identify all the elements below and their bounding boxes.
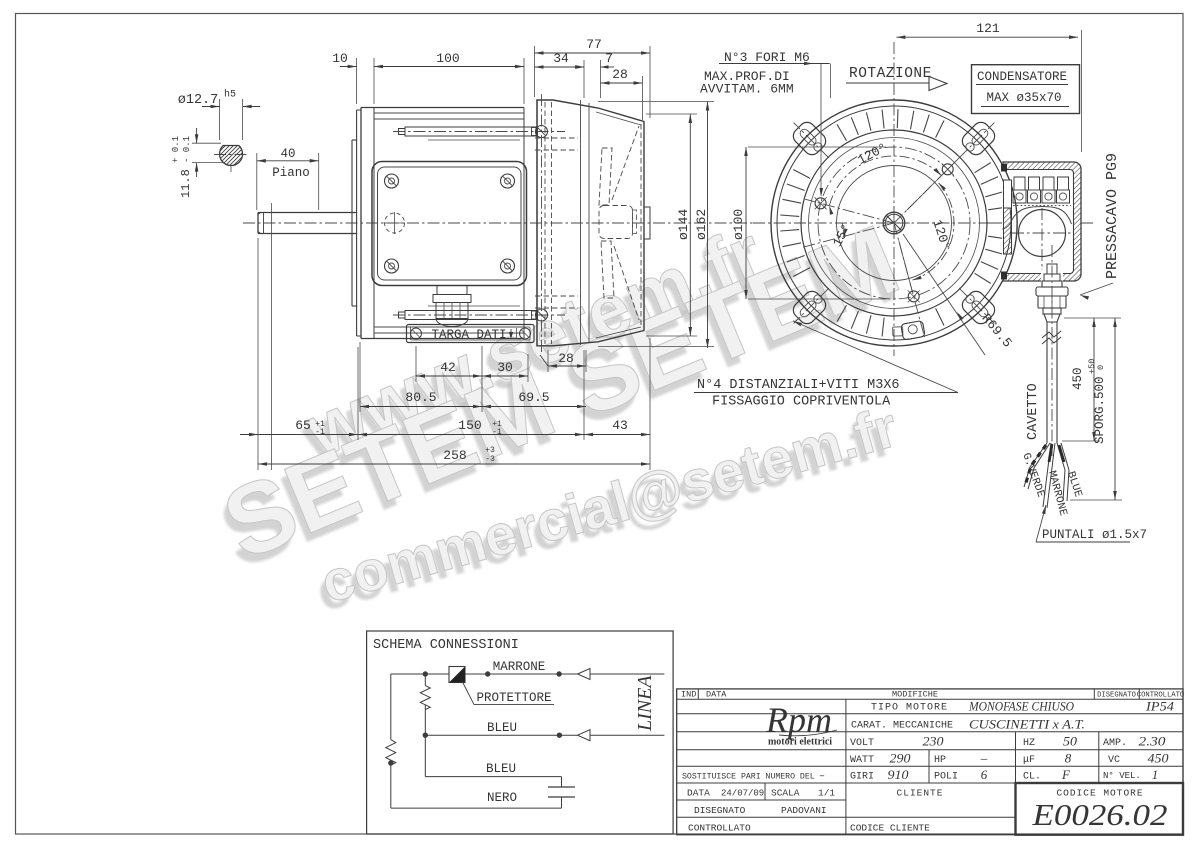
svg-text:TIPO MOTORE: TIPO MOTORE	[871, 703, 948, 714]
svg-text:6: 6	[981, 767, 988, 782]
svg-text:N°3 FORI M6: N°3 FORI M6	[724, 50, 810, 65]
svg-text:MAX ø35x70: MAX ø35x70	[986, 91, 1061, 105]
svg-text:DATA: DATA	[706, 690, 727, 700]
svg-text:PROTETTORE: PROTETTORE	[476, 691, 551, 705]
svg-text:1: 1	[1152, 767, 1159, 782]
svg-text:ROTAZIONE: ROTAZIONE	[849, 66, 932, 82]
svg-text:40: 40	[280, 147, 295, 161]
svg-text:HZ: HZ	[1023, 738, 1035, 749]
svg-text:80.5: 80.5	[405, 390, 436, 405]
svg-text:MODIFICHE: MODIFICHE	[892, 690, 938, 700]
svg-text:150: 150	[458, 418, 481, 433]
svg-text:IND: IND	[681, 690, 696, 700]
svg-text:DISEGNATO: DISEGNATO	[694, 805, 746, 816]
svg-text:CUSCINETTI x A.T.: CUSCINETTI x A.T.	[969, 717, 1085, 732]
svg-text:MONOFASE CHIUSO: MONOFASE CHIUSO	[968, 699, 1074, 714]
svg-text:DISEGNATO: DISEGNATO	[1097, 692, 1136, 700]
svg-text:NERO: NERO	[487, 791, 517, 805]
svg-text:ø162: ø162	[694, 209, 709, 240]
svg-text:CLIENTE: CLIENTE	[897, 788, 944, 799]
svg-text:42: 42	[440, 360, 456, 375]
svg-text:motori elettrici: motori elettrici	[768, 737, 832, 748]
svg-text:-3: -3	[485, 455, 495, 464]
svg-text:PRESSACAVO PG9: PRESSACAVO PG9	[1104, 153, 1121, 279]
svg-text:POLI: POLI	[934, 772, 958, 783]
svg-text:BLEU: BLEU	[487, 721, 517, 735]
svg-text:43: 43	[612, 418, 628, 433]
svg-text:DATA: DATA	[687, 788, 710, 799]
svg-text:MARRONE: MARRONE	[493, 660, 546, 674]
svg-text:258: 258	[443, 448, 466, 463]
svg-text:VOLT: VOLT	[850, 738, 874, 749]
svg-text:VC: VC	[1108, 755, 1120, 766]
svg-text:28: 28	[612, 67, 628, 82]
svg-text:–: –	[819, 771, 825, 782]
svg-text:77: 77	[586, 37, 602, 52]
svg-text:WATT: WATT	[850, 755, 874, 766]
svg-text:FISSAGGIO COPRIVENTOLA: FISSAGGIO COPRIVENTOLA	[712, 395, 891, 410]
svg-text:450: 450	[1148, 750, 1170, 765]
svg-text:CL.: CL.	[1023, 772, 1041, 783]
svg-text:7: 7	[605, 51, 613, 66]
svg-text:34: 34	[553, 51, 569, 66]
svg-text:+3: +3	[485, 446, 495, 455]
svg-text:Piano: Piano	[272, 166, 310, 180]
svg-text:2.30: 2.30	[1139, 734, 1167, 749]
svg-text:SOSTITUISCE PARI NUMERO DEL: SOSTITUISCE PARI NUMERO DEL	[682, 772, 815, 781]
svg-text:-1: -1	[315, 428, 325, 437]
svg-text:AVVITAM. 6MM: AVVITAM. 6MM	[700, 82, 794, 97]
svg-text:10: 10	[332, 51, 348, 66]
svg-text:SCHEMA CONNESSIONI: SCHEMA CONNESSIONI	[373, 638, 519, 653]
svg-text:IP54: IP54	[1145, 699, 1175, 714]
svg-text:AMP.: AMP.	[1103, 738, 1127, 749]
svg-text:SCALA: SCALA	[771, 788, 800, 799]
svg-text:CONTROLLATO: CONTROLLATO	[688, 823, 751, 834]
svg-text:69.5: 69.5	[518, 390, 549, 405]
svg-text:CONDENSATORE: CONDENSATORE	[977, 70, 1067, 84]
svg-text:PUNTALI ø1.5x7: PUNTALI ø1.5x7	[1042, 528, 1147, 542]
svg-text:230: 230	[923, 734, 945, 749]
svg-text:30: 30	[497, 360, 513, 375]
svg-text:SPORG.500: SPORG.500	[1093, 376, 1107, 444]
svg-text:24/07/09: 24/07/09	[721, 789, 764, 799]
svg-text:Rpm: Rpm	[765, 700, 832, 740]
svg-text:100: 100	[436, 51, 459, 66]
svg-text:50: 50	[1063, 734, 1078, 749]
svg-text:N° VEL.: N° VEL.	[1103, 771, 1141, 781]
svg-text:290: 290	[890, 750, 912, 765]
svg-text:h5: h5	[224, 89, 236, 101]
svg-text:E0026.02: E0026.02	[1031, 797, 1167, 832]
svg-text:PADOVANI: PADOVANI	[781, 805, 827, 816]
svg-text:μF: μF	[1023, 755, 1035, 766]
svg-text:11.8: 11.8	[179, 169, 193, 198]
svg-text:TARGA DATI: TARGA DATI	[431, 328, 506, 342]
svg-text:HP: HP	[934, 755, 946, 766]
svg-text:CODICE CLIENTE: CODICE CLIENTE	[850, 823, 930, 834]
svg-text:8: 8	[1065, 750, 1072, 765]
svg-text:F: F	[1061, 767, 1071, 782]
svg-text:450: 450	[1071, 367, 1085, 390]
svg-text:–: –	[980, 750, 988, 765]
svg-text:LINEA: LINEA	[634, 675, 656, 732]
svg-text:1/1: 1/1	[818, 788, 835, 799]
svg-text:- 0.1: - 0.1	[182, 136, 192, 163]
svg-text:0: 0	[1096, 365, 1106, 370]
svg-text:CARAT. MECCANICHE: CARAT. MECCANICHE	[851, 721, 953, 732]
svg-text:910: 910	[888, 767, 910, 782]
svg-text:GIRI: GIRI	[850, 772, 874, 783]
svg-text:BLEU: BLEU	[486, 762, 516, 776]
svg-text:ø100: ø100	[731, 209, 746, 240]
svg-text:65: 65	[295, 418, 311, 433]
svg-text:-1: -1	[492, 428, 502, 437]
svg-text:+ 0.1: + 0.1	[171, 136, 181, 163]
svg-text:121: 121	[976, 21, 1000, 36]
svg-text:28: 28	[558, 351, 574, 366]
svg-text:N°4 DISTANZIALI+VITI M3X6: N°4 DISTANZIALI+VITI M3X6	[697, 378, 900, 393]
svg-text:ø144: ø144	[676, 209, 691, 240]
svg-text:CAVETTO: CAVETTO	[1026, 383, 1041, 440]
